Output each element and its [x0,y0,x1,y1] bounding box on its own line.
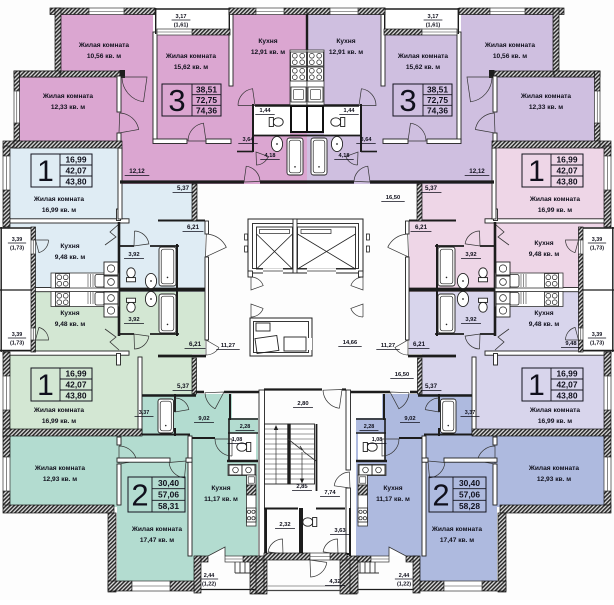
svg-text:9,48 кв. м: 9,48 кв. м [55,321,86,328]
svg-text:1,08: 1,08 [372,437,383,443]
svg-text:Кухня: Кухня [258,38,277,45]
svg-text:Кухня: Кухня [534,310,553,317]
svg-text:16,50: 16,50 [386,195,401,201]
svg-text:Жилая комната: Жилая комната [33,196,84,203]
svg-text:5,37: 5,37 [177,185,190,192]
svg-text:4,32: 4,32 [329,579,340,585]
svg-text:Жилая комната: Жилая комната [484,42,535,49]
svg-text:12,12: 12,12 [129,168,145,175]
svg-text:1: 1 [528,369,545,402]
svg-text:38,51: 38,51 [427,84,448,94]
svg-text:6,21: 6,21 [187,224,200,231]
svg-text:16,99 кв. м: 16,99 кв. м [538,207,572,214]
svg-text:30,40: 30,40 [459,478,480,488]
svg-text:16,99 кв. м: 16,99 кв. м [42,207,76,214]
svg-text:3,39: 3,39 [12,332,23,338]
svg-text:Жилая комната: Жилая комната [34,465,85,472]
svg-text:2,85: 2,85 [296,484,308,490]
svg-text:2,44: 2,44 [204,573,215,579]
svg-text:43,80: 43,80 [66,177,87,187]
svg-text:2,80: 2,80 [297,401,308,407]
svg-text:3,37: 3,37 [139,410,150,416]
svg-text:16,99 кв. м: 16,99 кв. м [42,418,76,425]
svg-text:Жилая комната: Жилая комната [528,465,579,472]
svg-text:3,39: 3,39 [592,237,603,243]
svg-text:(1,73): (1,73) [590,246,604,252]
svg-text:Жилая комната: Жилая комната [431,526,482,533]
svg-text:(1,61): (1,61) [174,23,189,29]
svg-text:42,07: 42,07 [557,380,578,390]
svg-text:72,75: 72,75 [427,95,448,105]
svg-text:57,06: 57,06 [158,490,179,500]
svg-text:Жилая комната: Жилая комната [520,93,571,100]
svg-text:3,64: 3,64 [361,137,373,143]
svg-text:3,39: 3,39 [12,237,23,243]
svg-text:(1,73): (1,73) [10,341,24,347]
svg-text:Кухня: Кухня [60,243,79,250]
svg-text:1: 1 [528,155,545,188]
svg-text:Кухня: Кухня [211,485,230,492]
svg-text:12,93 кв. м: 12,93 кв. м [43,476,77,483]
svg-text:7,74: 7,74 [324,490,336,496]
svg-text:(1,22): (1,22) [397,582,411,588]
svg-text:15,62 кв. м: 15,62 кв. м [406,64,440,71]
svg-text:2,28: 2,28 [364,424,375,430]
svg-text:43,80: 43,80 [557,177,578,187]
svg-text:Кухня: Кухня [336,38,355,45]
svg-text:1: 1 [37,155,54,188]
svg-text:Жилая комната: Жилая комната [131,526,182,533]
svg-text:9,48 кв. м: 9,48 кв. м [529,251,560,258]
svg-text:11,17 кв. м: 11,17 кв. м [204,496,238,503]
svg-text:9,48 кв. м: 9,48 кв. м [529,321,560,328]
svg-text:17,47 кв. м: 17,47 кв. м [140,537,174,544]
svg-text:Жилая комната: Жилая комната [33,407,84,414]
svg-text:3,92: 3,92 [465,317,476,323]
svg-text:12,12: 12,12 [469,168,485,175]
svg-text:Жилая комната: Жилая комната [42,93,93,100]
svg-text:16,99 кв. м: 16,99 кв. м [538,418,572,425]
svg-text:43,80: 43,80 [557,391,578,401]
svg-text:1,44: 1,44 [344,108,356,114]
svg-text:58,31: 58,31 [158,501,179,511]
svg-text:30,40: 30,40 [158,478,179,488]
svg-text:Кухня: Кухня [383,485,402,492]
svg-text:16,99: 16,99 [66,155,87,165]
svg-text:2,44: 2,44 [399,573,410,579]
svg-text:4,18: 4,18 [265,153,276,159]
svg-text:6,21: 6,21 [415,224,428,231]
svg-text:9,02: 9,02 [404,416,415,422]
svg-text:58,28: 58,28 [459,501,480,511]
svg-text:16,99: 16,99 [66,369,87,379]
svg-text:2: 2 [131,478,148,513]
svg-text:11,27: 11,27 [221,343,235,349]
svg-text:5,37: 5,37 [425,383,438,390]
svg-text:1: 1 [37,369,54,402]
svg-text:3,92: 3,92 [465,252,476,258]
svg-text:72,75: 72,75 [196,95,217,105]
svg-text:3,17: 3,17 [176,14,187,20]
svg-text:15,62 кв. м: 15,62 кв. м [174,64,208,71]
svg-text:2: 2 [432,478,449,513]
svg-text:57,06: 57,06 [459,490,480,500]
svg-text:3,64: 3,64 [243,137,255,143]
svg-text:16,99: 16,99 [557,155,578,165]
svg-text:74,36: 74,36 [196,106,217,116]
svg-text:12,91 кв. м: 12,91 кв. м [251,49,285,56]
svg-text:5,37: 5,37 [177,383,190,390]
svg-text:2,32: 2,32 [279,522,290,528]
svg-text:Жилая комната: Жилая комната [78,42,129,49]
svg-text:9,02: 9,02 [198,416,209,422]
svg-text:9,48 кв. м: 9,48 кв. м [55,254,86,261]
svg-text:16,99: 16,99 [557,369,578,379]
svg-text:12,33 кв. м: 12,33 кв. м [529,104,563,111]
svg-text:3,92: 3,92 [128,317,139,323]
svg-text:10,56 кв. м: 10,56 кв. м [87,53,121,60]
svg-text:3,63: 3,63 [334,528,346,534]
svg-text:3,39: 3,39 [592,332,603,338]
svg-text:3,37: 3,37 [465,410,476,416]
svg-text:(1,73): (1,73) [10,246,24,252]
svg-text:6,21: 6,21 [189,341,202,348]
svg-text:3: 3 [399,83,416,118]
svg-text:43,80: 43,80 [66,391,87,401]
svg-text:5,37: 5,37 [425,185,438,192]
svg-text:3,92: 3,92 [128,252,139,258]
svg-text:Кухня: Кухня [60,310,79,317]
svg-text:11,17 кв. м: 11,17 кв. м [376,496,410,503]
svg-text:38,51: 38,51 [196,84,217,94]
svg-text:17,47 кв. м: 17,47 кв. м [440,537,474,544]
svg-text:Жилая комната: Жилая комната [165,53,216,60]
svg-text:42,07: 42,07 [557,166,578,176]
svg-text:12,93 кв. м: 12,93 кв. м [537,476,571,483]
svg-text:Жилая комната: Жилая комната [529,407,580,414]
svg-text:1,44: 1,44 [260,108,272,114]
svg-text:2,28: 2,28 [240,424,251,430]
svg-text:74,36: 74,36 [427,106,448,116]
svg-text:11,27: 11,27 [381,343,395,349]
svg-text:Жилая комната: Жилая комната [397,53,448,60]
svg-text:16,50: 16,50 [395,372,410,378]
svg-text:(1,73): (1,73) [590,341,604,347]
svg-text:1,08: 1,08 [232,437,243,443]
svg-text:(1,61): (1,61) [426,23,441,29]
svg-text:3: 3 [168,83,185,118]
svg-text:6,21: 6,21 [413,341,426,348]
svg-text:10,56 кв. м: 10,56 кв. м [493,53,527,60]
svg-text:3,17: 3,17 [428,14,439,20]
svg-text:14,66: 14,66 [343,340,358,346]
svg-text:(1,22): (1,22) [202,582,216,588]
svg-text:42,07: 42,07 [66,380,87,390]
svg-text:Жилая комната: Жилая комната [529,196,580,203]
svg-text:12,91 кв. м: 12,91 кв. м [329,49,363,56]
svg-text:9,48: 9,48 [565,341,577,347]
svg-text:Кухня: Кухня [534,240,553,247]
svg-text:4,18: 4,18 [339,153,350,159]
svg-text:12,33 кв. м: 12,33 кв. м [51,104,85,111]
svg-text:42,07: 42,07 [66,166,87,176]
